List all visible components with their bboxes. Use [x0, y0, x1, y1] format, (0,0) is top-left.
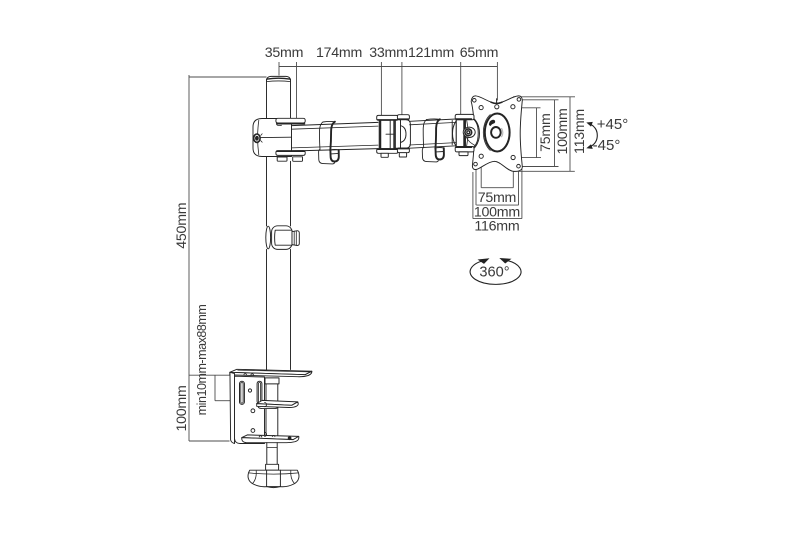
svg-text:75mm: 75mm — [478, 190, 516, 206]
svg-text:100mm: 100mm — [555, 108, 571, 154]
svg-text:min10mm-max88mm: min10mm-max88mm — [195, 305, 209, 416]
svg-text:360°: 360° — [479, 265, 509, 281]
svg-text:75mm: 75mm — [538, 113, 554, 151]
svg-text:-45°: -45° — [593, 137, 621, 154]
svg-text:116mm: 116mm — [474, 218, 519, 234]
svg-text:100mm: 100mm — [174, 385, 190, 431]
svg-text:33mm: 33mm — [369, 45, 407, 61]
svg-text:+45°: +45° — [597, 116, 628, 133]
svg-text:113mm: 113mm — [572, 109, 588, 154]
svg-text:174mm: 174mm — [316, 45, 362, 61]
svg-text:121mm: 121mm — [408, 45, 454, 61]
svg-text:35mm: 35mm — [265, 45, 303, 61]
svg-text:65mm: 65mm — [460, 45, 498, 61]
svg-text:450mm: 450mm — [174, 203, 190, 249]
